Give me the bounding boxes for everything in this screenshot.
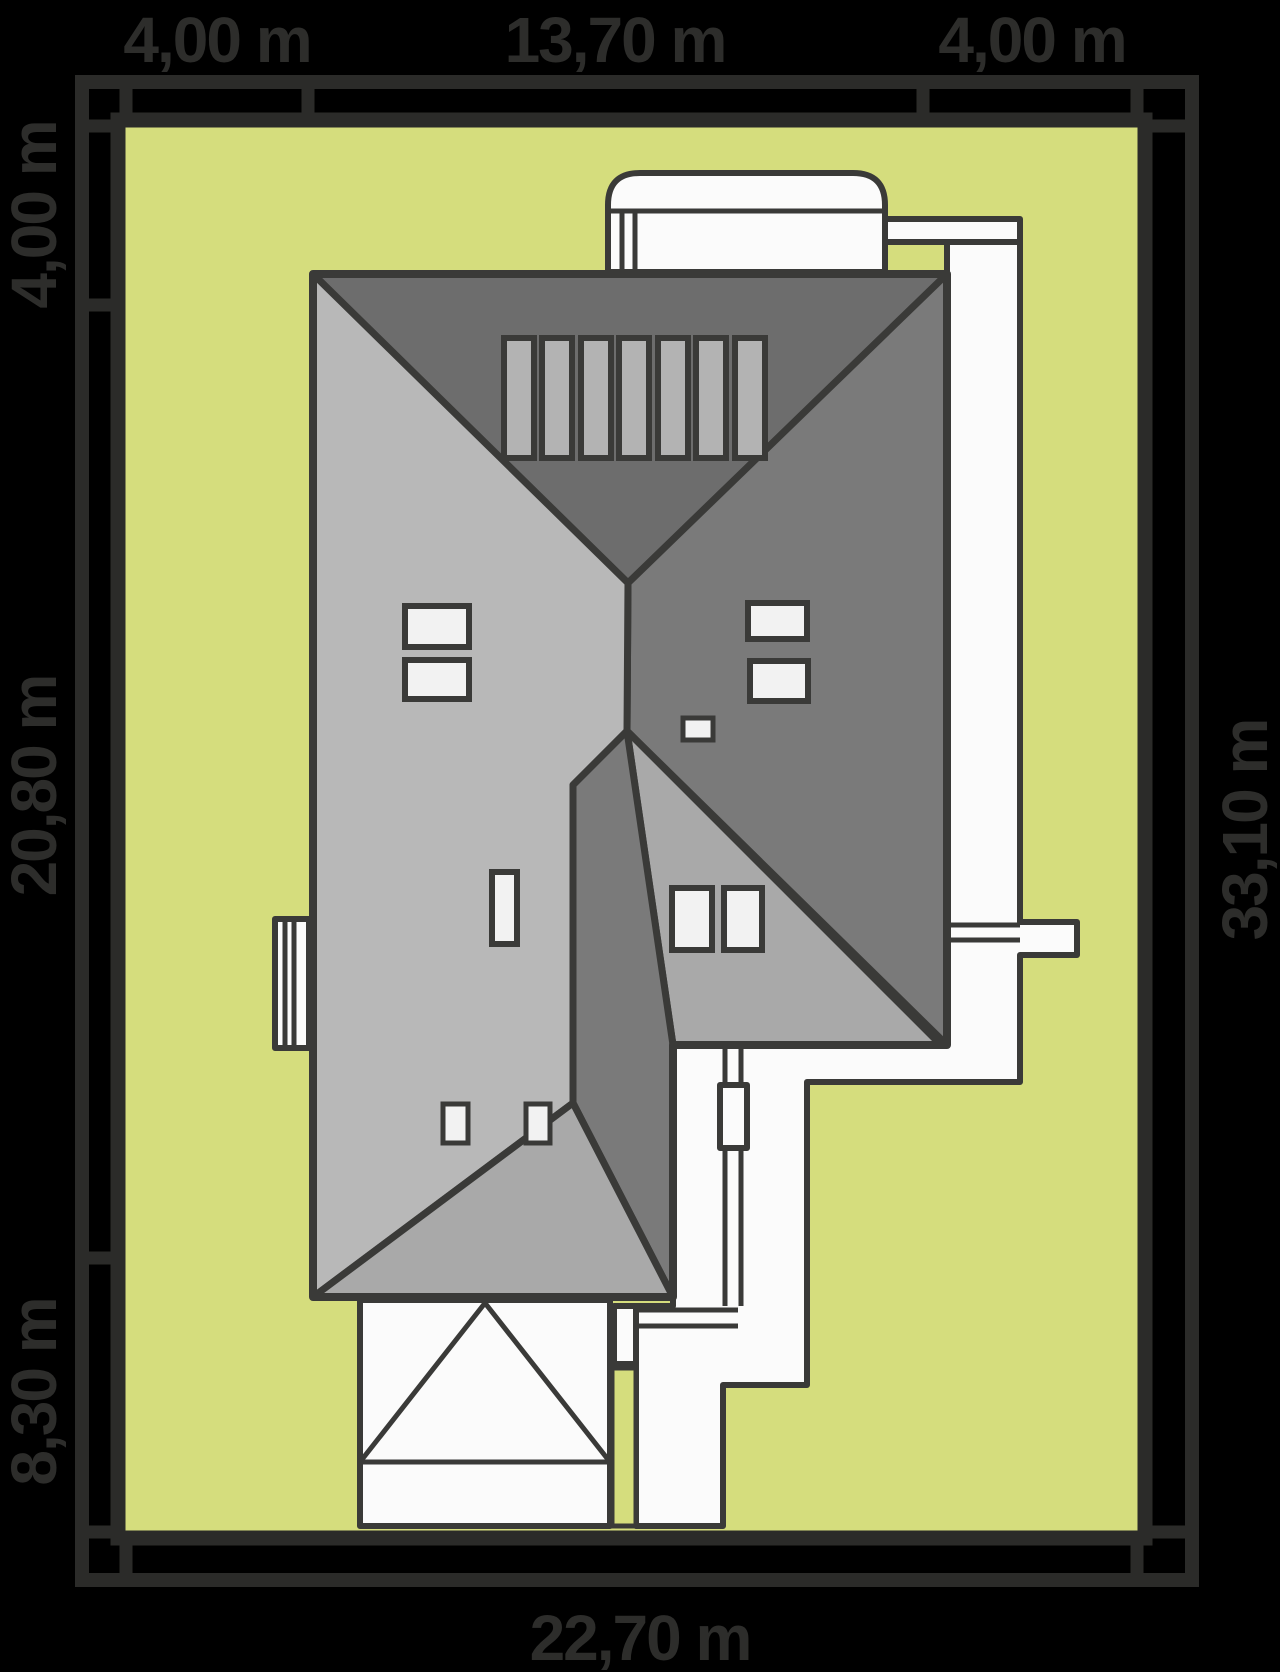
roof-vent-south-2: [526, 1104, 550, 1143]
east-wing-chimney: [720, 1085, 747, 1148]
solar-panel: [542, 338, 572, 458]
roof-window-wing-2: [724, 888, 762, 950]
solar-panel: [658, 338, 688, 458]
dim-top-center: 13,70 m: [505, 4, 726, 76]
solar-panel: [581, 338, 611, 458]
dim-left-middle: 20,80 m: [0, 676, 70, 897]
north-terrace: [608, 173, 885, 272]
dim-left-bottom: 8,30 m: [0, 1298, 70, 1485]
ridge-chimney: [492, 872, 517, 944]
solar-panel: [504, 338, 534, 458]
site-plan: 4,00 m 13,70 m 4,00 m 4,00 m 20,80 m 8,3…: [0, 0, 1280, 1672]
site-plan-drawing: 4,00 m 13,70 m 4,00 m 4,00 m 20,80 m 8,3…: [0, 0, 1280, 1672]
dim-left-top: 4,00 m: [0, 121, 70, 308]
roof-vent-east: [683, 718, 713, 740]
roof-vent-south-1: [443, 1104, 468, 1143]
solar-panel: [619, 338, 649, 458]
south-chimney: [614, 1306, 636, 1364]
dim-bottom: 22,70 m: [530, 1602, 751, 1672]
roof-window-west-2: [405, 660, 469, 699]
roof-window-wing-1: [672, 888, 712, 950]
dim-top-left: 4,00 m: [123, 4, 310, 76]
dim-top-right: 4,00 m: [938, 4, 1125, 76]
roof-window-east-1: [748, 603, 807, 639]
solar-panel: [735, 338, 765, 458]
solar-panels: [504, 338, 765, 458]
roof-window-west-1: [405, 606, 469, 647]
solar-panel: [696, 338, 726, 458]
dim-right: 33,10 m: [1209, 720, 1280, 941]
roof-window-east-2: [750, 661, 808, 701]
terrace-step-band: [885, 219, 1020, 242]
garden-strip: [612, 1368, 636, 1526]
